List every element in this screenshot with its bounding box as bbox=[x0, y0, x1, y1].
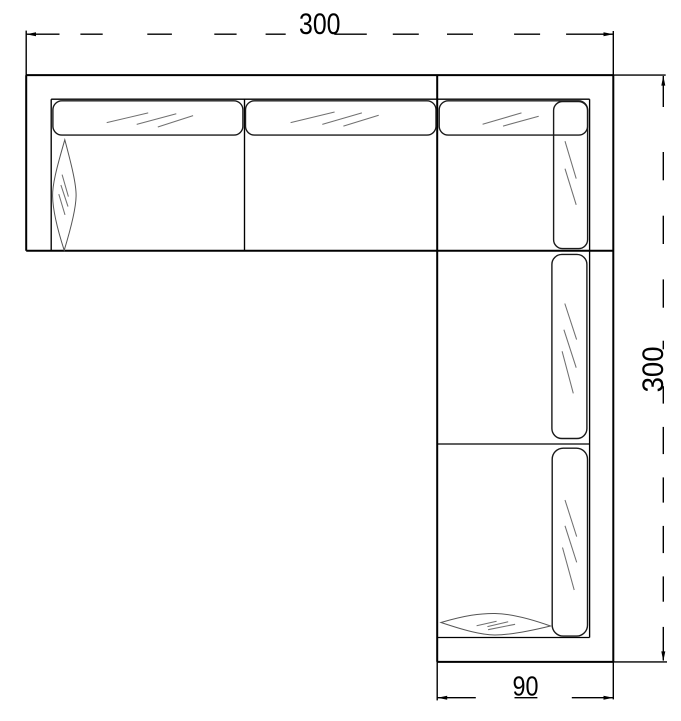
svg-text:90: 90 bbox=[513, 671, 539, 702]
svg-text:300: 300 bbox=[637, 346, 670, 392]
svg-text:300: 300 bbox=[299, 8, 341, 41]
